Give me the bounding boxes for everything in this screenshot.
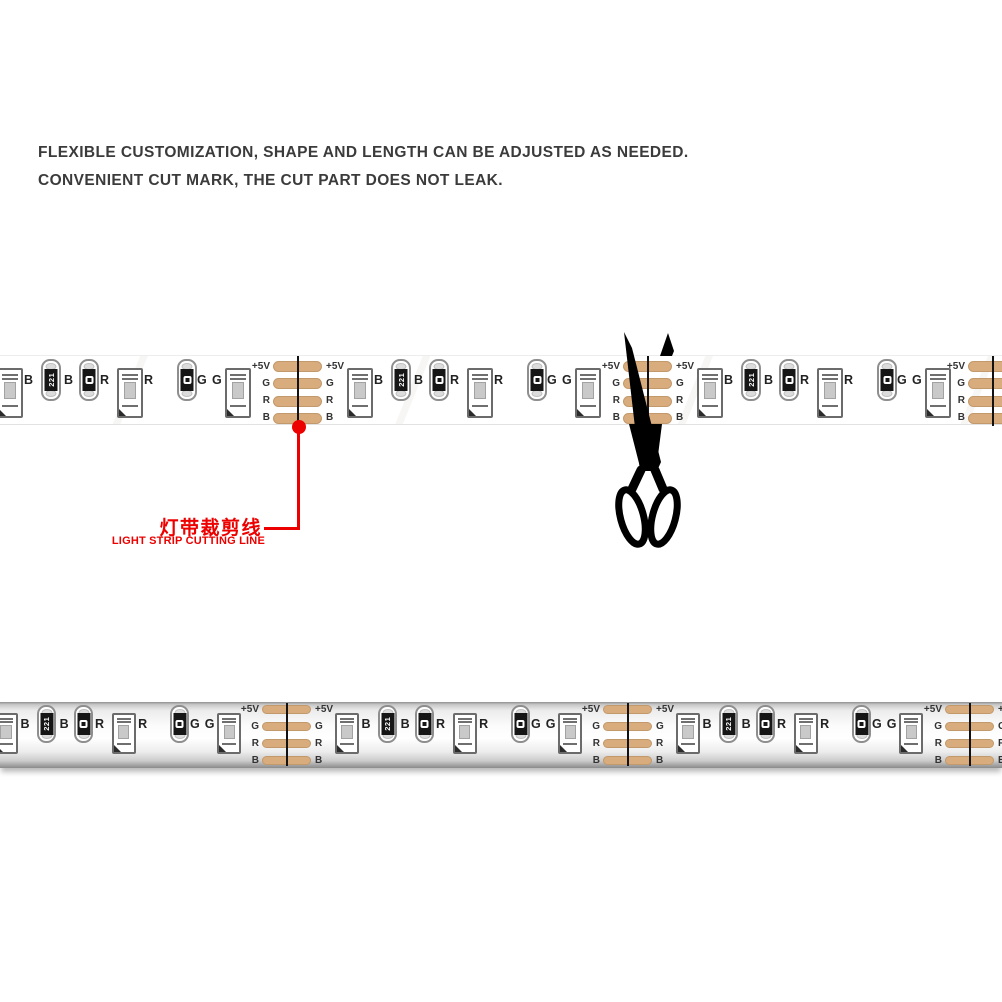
led-die xyxy=(4,382,16,399)
channel-label: B xyxy=(764,374,773,387)
channel-label: B xyxy=(414,374,423,387)
resistor xyxy=(527,359,547,401)
header-line-2: CONVENIENT CUT MARK, THE CUT PART DOES N… xyxy=(38,167,689,195)
led-top-line xyxy=(681,718,695,720)
led-top-line xyxy=(122,374,137,376)
cut-line xyxy=(297,356,299,426)
led-package xyxy=(0,368,23,418)
led-pin1-notch xyxy=(469,409,476,416)
led-die xyxy=(474,382,486,399)
channel-label: B xyxy=(64,374,73,387)
pad-label-left: B xyxy=(217,756,259,766)
pad-label-left: +5V xyxy=(558,705,600,715)
led-second-line xyxy=(122,378,137,380)
cut-line xyxy=(969,703,971,766)
resistor-body: 221 xyxy=(40,713,53,735)
pad-label-right: +5V xyxy=(315,705,333,715)
resistor-body xyxy=(759,713,772,735)
led-package xyxy=(453,713,477,754)
resistor-body xyxy=(881,369,894,391)
channel-label: B xyxy=(20,718,29,731)
channel-label: R xyxy=(820,718,829,731)
resistor-body: 221 xyxy=(722,713,735,735)
resistor-marking xyxy=(517,720,525,728)
led-second-line xyxy=(458,721,472,723)
resistor-body xyxy=(83,369,96,391)
resistor: 221 xyxy=(391,359,411,401)
resistor xyxy=(177,359,197,401)
led-package xyxy=(794,713,818,754)
resistor-body xyxy=(77,713,90,735)
resistor xyxy=(779,359,799,401)
cut-mark-pointer-vertical xyxy=(297,427,300,529)
led-top-line xyxy=(822,374,837,376)
resistor-end-cap-bottom xyxy=(882,390,893,397)
resistor: 221 xyxy=(378,705,397,743)
resistor-body xyxy=(173,713,186,735)
resistor xyxy=(170,705,189,743)
pad-label-left: G xyxy=(558,722,600,732)
pad-label-right: G xyxy=(656,722,664,732)
pad-label-left: B xyxy=(923,413,965,423)
resistor-end-cap-bottom xyxy=(84,390,95,397)
channel-label: G xyxy=(212,374,222,387)
channel-label: B xyxy=(24,374,33,387)
led-top-line xyxy=(340,718,354,720)
cut-line xyxy=(286,703,288,766)
resistor-marking-core xyxy=(185,378,189,382)
led-package xyxy=(225,368,251,418)
pad-label-left: +5V xyxy=(923,362,965,372)
pad-label-right: +5V xyxy=(656,705,674,715)
resistor: 221 xyxy=(741,359,761,401)
channel-label: R xyxy=(95,718,104,731)
resistor-marking xyxy=(435,376,443,384)
resistor-body xyxy=(514,713,527,735)
pad-label-left: +5V xyxy=(217,705,259,715)
resistor-marking: 221 xyxy=(725,717,733,731)
resistor-end-cap-bottom xyxy=(182,390,193,397)
resistor-body: 221 xyxy=(381,713,394,735)
led-bottom-line xyxy=(472,405,487,407)
resistor-marking: 221 xyxy=(47,373,55,387)
resistor: 221 xyxy=(41,359,61,401)
channel-label: R xyxy=(777,718,786,731)
led-die xyxy=(704,382,716,399)
led-strip-waterproof: +5V+5VGGRRBBB221BRRGG+5V+5VGGRRBBB221BRR… xyxy=(0,702,1002,768)
channel-label: R xyxy=(100,374,109,387)
led-second-line xyxy=(340,721,354,723)
scissors-icon xyxy=(598,325,702,560)
resistor-marking xyxy=(85,376,93,384)
led-die xyxy=(118,725,129,739)
resistor xyxy=(511,705,530,743)
led-top-line xyxy=(230,374,245,376)
led-top-line xyxy=(2,374,17,376)
resistor-marking-core xyxy=(885,378,889,382)
cut-line xyxy=(627,703,629,766)
pad-label-right: R xyxy=(315,739,322,749)
led-package xyxy=(676,713,700,754)
cutting-line-label-en: LIGHT STRIP CUTTING LINE xyxy=(112,535,265,547)
channel-label: G xyxy=(531,718,541,731)
channel-label: G xyxy=(887,718,897,731)
channel-label: R xyxy=(450,374,459,387)
led-pin1-notch xyxy=(819,409,826,416)
led-pin1-notch xyxy=(349,409,356,416)
pad-label-left: G xyxy=(228,379,270,389)
led-die xyxy=(824,382,836,399)
led-bottom-line xyxy=(122,405,137,407)
resistor-marking-core xyxy=(519,722,523,726)
led-pin1-notch xyxy=(119,409,126,416)
led-die xyxy=(341,725,352,739)
header-line-1: FLEXIBLE CUSTOMIZATION, SHAPE AND LENGTH… xyxy=(38,139,689,167)
resistor-end-cap-bottom xyxy=(532,390,543,397)
resistor xyxy=(852,705,871,743)
channel-label: G xyxy=(190,718,200,731)
pad-label-right: B xyxy=(998,756,1002,766)
pad-label-left: R xyxy=(228,396,270,406)
resistor xyxy=(756,705,775,743)
led-top-line xyxy=(580,374,595,376)
solder-pad xyxy=(968,396,1002,407)
resistor-end-cap-bottom xyxy=(746,390,757,397)
led-second-line xyxy=(117,721,131,723)
pad-label-left: +5V xyxy=(900,705,942,715)
channel-label: R xyxy=(144,374,153,387)
led-pin1-notch xyxy=(796,745,803,752)
led-die xyxy=(354,382,366,399)
resistor-body xyxy=(783,369,796,391)
led-top-line xyxy=(472,374,487,376)
resistor-marking-core xyxy=(87,378,91,382)
channel-label: G xyxy=(197,374,207,387)
pad-label-left: R xyxy=(217,739,259,749)
pad-label-right: R xyxy=(656,739,663,749)
resistor-body xyxy=(433,369,446,391)
led-package xyxy=(0,713,18,754)
pad-label-right: +5V xyxy=(998,705,1002,715)
resistor-marking: 221 xyxy=(43,717,51,731)
pad-label-left: B xyxy=(558,756,600,766)
resistor-marking-core xyxy=(82,722,86,726)
resistor-end-cap-bottom xyxy=(784,390,795,397)
resistor xyxy=(429,359,449,401)
led-top-line xyxy=(352,374,367,376)
led-top-line xyxy=(904,718,918,720)
led-top-line xyxy=(117,718,131,720)
channel-label: G xyxy=(872,718,882,731)
resistor-marking xyxy=(80,720,88,728)
resistor-body xyxy=(418,713,431,735)
channel-label: G xyxy=(547,374,557,387)
resistor xyxy=(415,705,434,743)
solder-pad xyxy=(968,361,1002,372)
pad-label-right: G xyxy=(998,722,1002,732)
product-image: FLEXIBLE CUSTOMIZATION, SHAPE AND LENGTH… xyxy=(0,0,1002,1002)
resistor-marking-core xyxy=(423,722,427,726)
led-top-line xyxy=(799,718,813,720)
resistor-marking-core xyxy=(860,722,864,726)
led-top-line xyxy=(702,374,717,376)
resistor-body xyxy=(181,369,194,391)
resistor-body xyxy=(531,369,544,391)
led-second-line xyxy=(0,721,13,723)
pad-label-right: R xyxy=(998,739,1002,749)
resistor-body: 221 xyxy=(745,369,758,391)
resistor-marking: 221 xyxy=(384,717,392,731)
led-pin1-notch xyxy=(0,409,6,416)
pad-label-left: G xyxy=(900,722,942,732)
channel-label: G xyxy=(205,718,215,731)
led-package xyxy=(925,368,951,418)
solder-pad xyxy=(968,378,1002,389)
cut-line xyxy=(992,356,994,426)
pad-label-right: G xyxy=(315,722,323,732)
led-pin1-notch xyxy=(337,745,344,752)
led-top-line xyxy=(222,718,236,720)
led-die xyxy=(682,725,693,739)
resistor-body: 221 xyxy=(395,369,408,391)
pad-label-left: +5V xyxy=(228,362,270,372)
resistor-end-cap-bottom xyxy=(434,390,445,397)
led-bottom-line xyxy=(2,405,17,407)
led-top-line xyxy=(563,718,577,720)
pad-label-left: B xyxy=(228,413,270,423)
channel-label: G xyxy=(562,374,572,387)
channel-label: B xyxy=(702,718,711,731)
resistor-marking-core xyxy=(535,378,539,382)
resistor: 221 xyxy=(719,705,738,743)
resistor xyxy=(74,705,93,743)
pad-label-right: G xyxy=(326,379,334,389)
channel-label: B xyxy=(401,718,410,731)
resistor-marking xyxy=(858,720,866,728)
led-package xyxy=(347,368,373,418)
led-die xyxy=(459,725,470,739)
channel-label: R xyxy=(844,374,853,387)
led-package xyxy=(117,368,143,418)
resistor-marking: 221 xyxy=(747,373,755,387)
resistor-end-cap-bottom xyxy=(396,390,407,397)
led-package xyxy=(112,713,136,754)
channel-label: G xyxy=(912,374,922,387)
resistor-marking xyxy=(762,720,770,728)
resistor: 221 xyxy=(37,705,56,743)
led-second-line xyxy=(799,721,813,723)
led-die xyxy=(124,382,136,399)
resistor-marking: 221 xyxy=(397,373,405,387)
channel-label: R xyxy=(494,374,503,387)
channel-label: R xyxy=(479,718,488,731)
resistor-marking-core xyxy=(437,378,441,382)
channel-label: B xyxy=(361,718,370,731)
led-bottom-line xyxy=(352,405,367,407)
cut-mark-pointer-horizontal xyxy=(264,527,300,530)
pad-label-left: R xyxy=(558,739,600,749)
led-package xyxy=(817,368,843,418)
pad-label-left: R xyxy=(900,739,942,749)
resistor xyxy=(79,359,99,401)
led-second-line xyxy=(2,378,17,380)
led-second-line xyxy=(822,378,837,380)
header-text: FLEXIBLE CUSTOMIZATION, SHAPE AND LENGTH… xyxy=(38,139,689,195)
channel-label: G xyxy=(546,718,556,731)
resistor-marking xyxy=(883,376,891,384)
led-package xyxy=(335,713,359,754)
pad-label-left: G xyxy=(217,722,259,732)
resistor-marking xyxy=(183,376,191,384)
channel-label: R xyxy=(436,718,445,731)
solder-pad xyxy=(968,413,1002,424)
led-die xyxy=(0,725,11,739)
resistor-marking xyxy=(176,720,184,728)
led-top-line xyxy=(0,718,13,720)
led-pin1-notch xyxy=(0,745,3,752)
led-strip-bare: +5V+5VGGRRBBB221BRRGG+5V+5VGGRRBBB221BRR… xyxy=(0,355,1002,425)
led-top-line xyxy=(930,374,945,376)
resistor-marking-core xyxy=(178,722,182,726)
pad-label-left: R xyxy=(923,396,965,406)
led-second-line xyxy=(472,378,487,380)
pad-label-right: B xyxy=(315,756,322,766)
resistor-marking-core xyxy=(787,378,791,382)
pad-label-left: B xyxy=(900,756,942,766)
resistor-marking xyxy=(785,376,793,384)
channel-label: G xyxy=(897,374,907,387)
resistor-marking xyxy=(421,720,429,728)
pad-label-right: B xyxy=(656,756,663,766)
led-second-line xyxy=(681,721,695,723)
led-pin1-notch xyxy=(455,745,462,752)
channel-label: B xyxy=(60,718,69,731)
channel-label: B xyxy=(374,374,383,387)
pad-label-right: +5V xyxy=(326,362,344,372)
led-die xyxy=(800,725,811,739)
resistor-body: 221 xyxy=(45,369,58,391)
led-package xyxy=(467,368,493,418)
resistor xyxy=(877,359,897,401)
channel-label: R xyxy=(800,374,809,387)
channel-label: R xyxy=(138,718,147,731)
led-pin1-notch xyxy=(114,745,121,752)
led-bottom-line xyxy=(822,405,837,407)
channel-label: B xyxy=(724,374,733,387)
resistor-end-cap-bottom xyxy=(46,390,57,397)
resistor-body xyxy=(855,713,868,735)
channel-label: B xyxy=(742,718,751,731)
led-pin1-notch xyxy=(678,745,685,752)
led-second-line xyxy=(352,378,367,380)
led-top-line xyxy=(458,718,472,720)
led-bottom-line xyxy=(702,405,717,407)
led-second-line xyxy=(702,378,717,380)
pad-label-right: R xyxy=(326,396,333,406)
resistor-marking xyxy=(533,376,541,384)
pad-label-left: G xyxy=(923,379,965,389)
resistor-marking-core xyxy=(764,722,768,726)
pad-label-right: B xyxy=(326,413,333,423)
